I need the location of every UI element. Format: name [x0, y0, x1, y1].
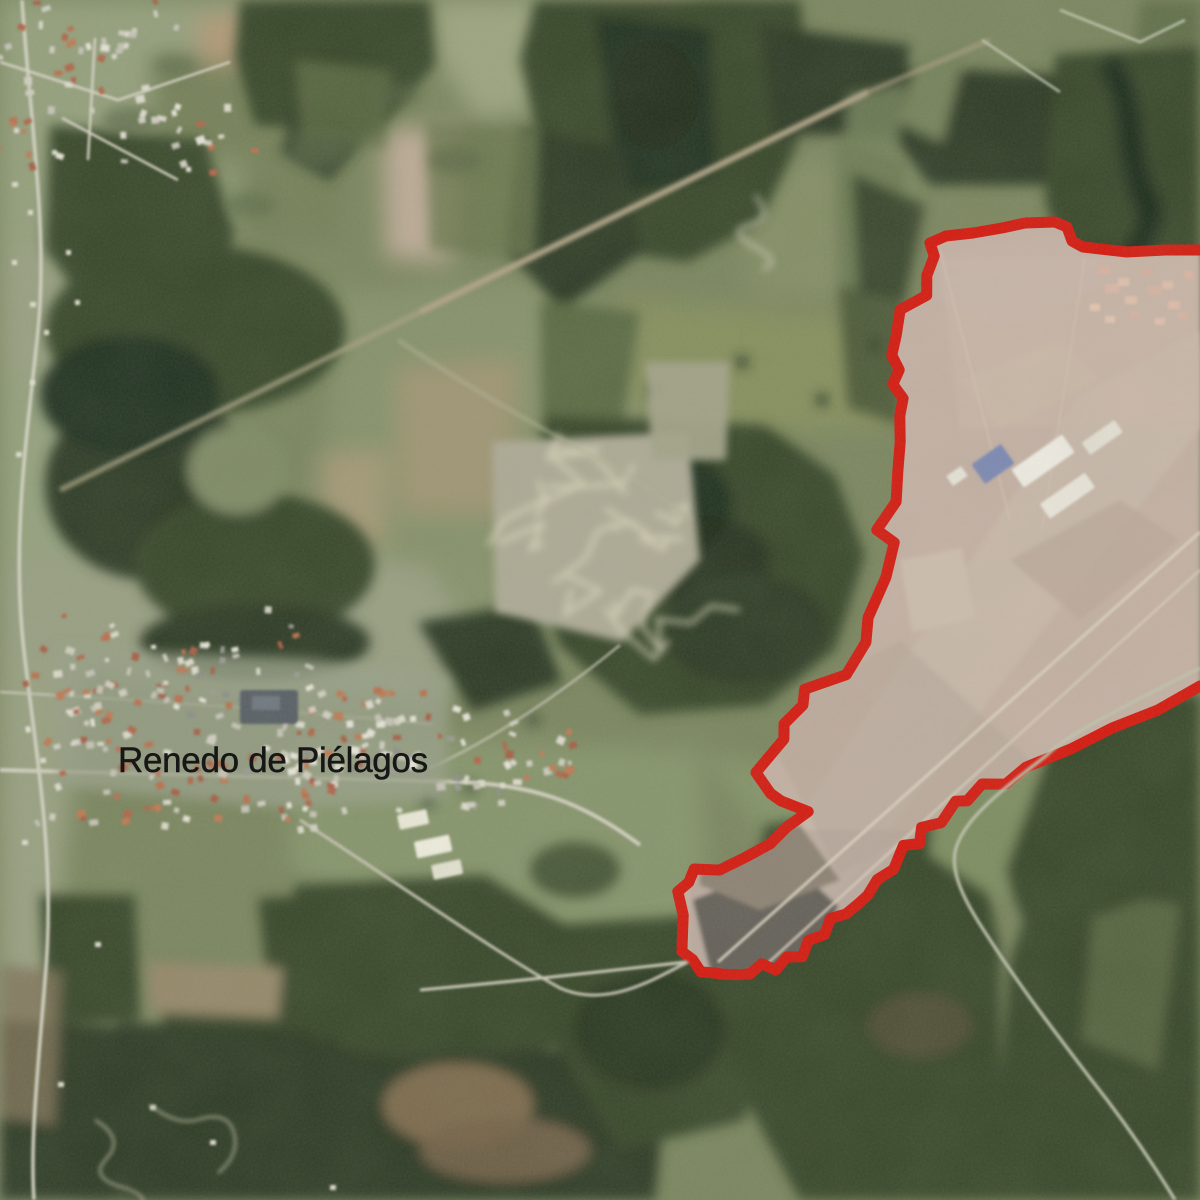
svg-text:Renedo de Piélagos: Renedo de Piélagos [118, 741, 428, 780]
